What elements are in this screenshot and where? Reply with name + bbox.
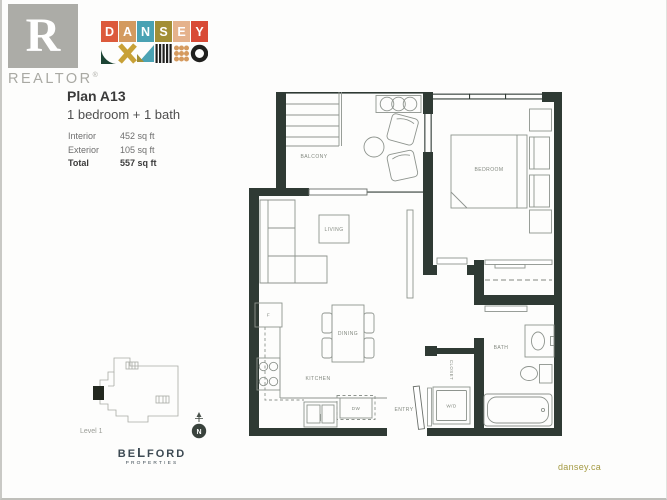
balcony-table <box>364 137 384 157</box>
furniture <box>255 92 554 427</box>
area-stats: Interior452 sq ft Exterior105 sq ft Tota… <box>68 131 157 172</box>
tv-console <box>407 210 413 298</box>
page-title: Plan A13 <box>67 88 180 104</box>
realtor-wordmark: REALTOR® <box>8 71 98 87</box>
label-dishwasher: DW <box>352 406 361 411</box>
kitchen-sink <box>304 402 337 427</box>
room-label-entry: ENTRY <box>394 407 413 413</box>
unit-location-marker <box>93 386 104 400</box>
lounge-chair <box>386 113 419 146</box>
vanity-sink <box>525 325 554 357</box>
ring-icon <box>193 47 206 60</box>
planter <box>376 96 421 113</box>
dansey-letter-y: Y <box>191 21 208 42</box>
dansey-letter-a: A <box>119 21 136 42</box>
belford-logo: BELFORD PROPERTIES <box>110 445 194 466</box>
label-washer-dryer: W/D <box>446 404 457 409</box>
x-shape-icon <box>120 45 135 62</box>
north-compass-icon: N <box>188 412 210 442</box>
room-label-balcony: BALCONY <box>300 154 327 160</box>
entry-door-leaf <box>413 386 424 429</box>
website-link: dansey.ca <box>558 462 601 472</box>
room-label-living: LIVING <box>324 227 343 233</box>
balcony-screen <box>286 92 342 146</box>
belford-building-l: L <box>137 445 147 460</box>
realtor-logo: R REALTOR® <box>8 4 98 87</box>
room-label-dining: DINING <box>338 331 358 337</box>
keyplan-level-label: Level 1 <box>80 428 103 435</box>
sofa <box>260 200 327 283</box>
room-label-kitchen: KITCHEN <box>305 376 330 382</box>
realtor-r-letter: R <box>26 12 61 60</box>
bath-door-leaf <box>485 306 527 312</box>
brochure-page: R REALTOR® D A N S E Y <box>0 0 667 500</box>
dansey-logo: D A N S E Y <box>101 21 208 65</box>
floorplan-drawing: BALCONY BEDROOM LIVING DINING KITCHEN BA… <box>237 80 567 440</box>
wd-closet-door <box>428 388 432 426</box>
registered-mark: ® <box>93 72 98 79</box>
toilet <box>521 365 553 384</box>
dansey-shape-tiles <box>101 43 208 65</box>
lounge-chair <box>386 150 418 182</box>
leaf-shape-icon <box>101 45 116 64</box>
triangles-icon <box>137 45 154 62</box>
belford-properties-label: PROPERTIES <box>110 461 194 466</box>
dansey-letter-e: E <box>173 21 190 42</box>
stat-total: Total557 sq ft <box>68 158 157 168</box>
nightstand <box>530 210 552 233</box>
bedroom-closet <box>485 260 552 280</box>
plan-subtitle: 1 bedroom + 1 bath <box>67 107 180 122</box>
bathtub <box>484 394 552 426</box>
dansey-letter-tiles: D A N S E Y <box>101 21 208 42</box>
pillows <box>530 137 550 207</box>
plan-header: Plan A13 1 bedroom + 1 bath <box>67 88 180 122</box>
stat-interior: Interior452 sq ft <box>68 131 157 141</box>
realtor-r-icon: R <box>8 4 78 68</box>
stripes-icon <box>156 44 172 63</box>
stove <box>257 358 280 390</box>
svg-text:N: N <box>196 429 201 436</box>
bedroom-door-leaf <box>437 258 467 264</box>
room-label-bath: BATH <box>494 345 509 351</box>
dots-grid-icon <box>174 46 189 62</box>
room-label-bedroom: BEDROOM <box>475 167 504 173</box>
dansey-letter-d: D <box>101 21 118 42</box>
keyplan-diagram <box>70 352 190 432</box>
stat-exterior: Exterior105 sq ft <box>68 145 157 155</box>
sliding-door-panel <box>309 189 367 195</box>
label-fridge: F <box>267 313 270 318</box>
label-closet: CLOSET <box>449 360 454 380</box>
dresser <box>530 109 552 131</box>
dansey-letter-s: S <box>155 21 172 42</box>
dansey-letter-n: N <box>137 21 154 42</box>
